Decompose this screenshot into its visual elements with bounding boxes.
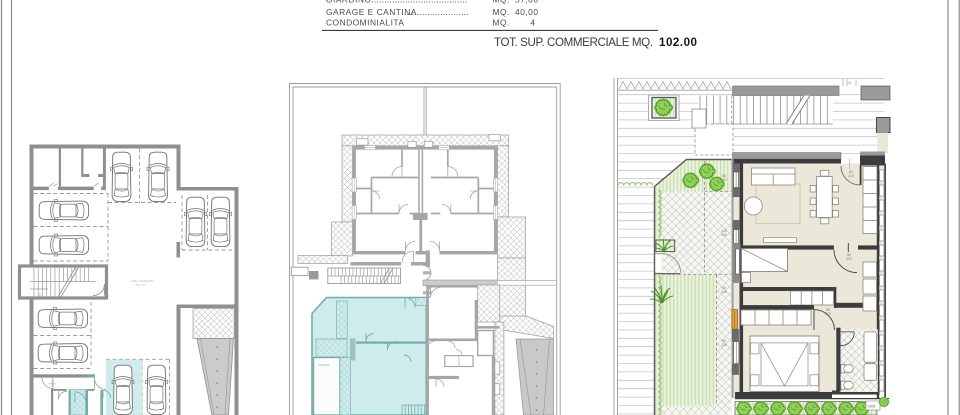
svg-text:CONDOMINIALITA: CONDOMINIALITA: [326, 17, 405, 27]
svg-text:210: 210: [825, 312, 831, 316]
svg-text:102.00: 102.00: [659, 36, 697, 49]
svg-text:MQ.: MQ.: [493, 7, 510, 17]
svg-text:230: 230: [721, 290, 727, 294]
svg-text:230: 230: [721, 233, 727, 237]
svg-text:210: 210: [848, 174, 854, 178]
svg-text:MQ.: MQ.: [493, 0, 510, 5]
svg-text:GARAGE E CANTINA: GARAGE E CANTINA: [326, 7, 417, 17]
svg-text:30: 30: [848, 81, 852, 85]
svg-text:110: 110: [721, 178, 727, 182]
svg-text:N05: N05: [868, 404, 876, 409]
svg-text:TOT. SUP. COMMERCIALE MQ.: TOT. SUP. COMMERCIALE MQ.: [494, 36, 653, 49]
svg-text:MQ 102: MQ 102: [136, 284, 146, 287]
svg-text:4: 4: [530, 17, 535, 27]
svg-text:GIARDINO: GIARDINO: [326, 0, 371, 5]
svg-text:CANTINA: CANTINA: [318, 363, 330, 367]
svg-text:MQ.: MQ.: [493, 17, 510, 27]
svg-text:AREA MANOVRA: AREA MANOVRA: [131, 279, 154, 283]
svg-text:230: 230: [721, 343, 727, 347]
svg-text:57,00: 57,00: [515, 0, 538, 5]
svg-text:40,00: 40,00: [515, 7, 538, 17]
svg-text:210: 210: [846, 257, 852, 261]
